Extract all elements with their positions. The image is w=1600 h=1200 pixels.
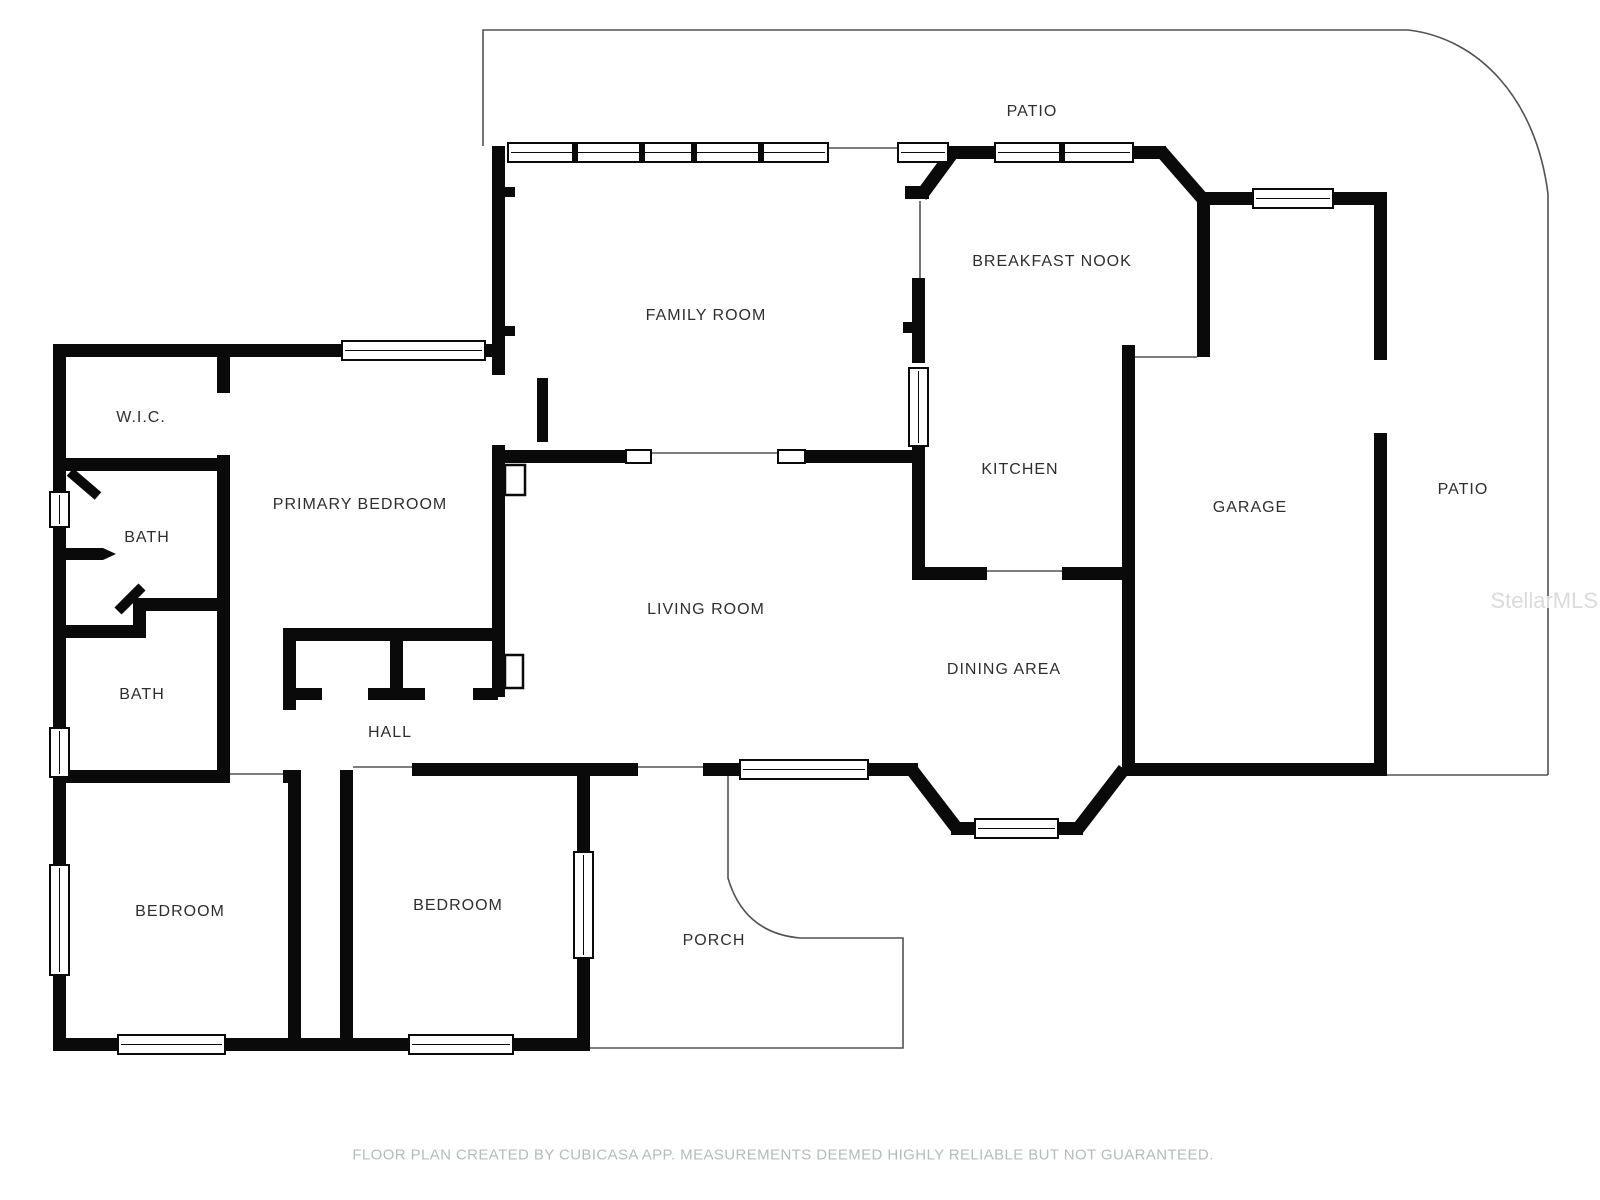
room-label-wic: W.I.C. <box>116 409 166 427</box>
room-label-living-room: LIVING ROOM <box>647 601 765 619</box>
fixture-boxes <box>505 465 525 688</box>
room-label-dining-area: DINING AREA <box>947 661 1061 679</box>
room-label-kitchen: KITCHEN <box>981 461 1058 479</box>
footer-disclaimer: FLOOR PLAN CREATED BY CUBICASA APP. MEAS… <box>352 1147 1213 1164</box>
room-label-bedroom-1: BEDROOM <box>135 903 225 921</box>
porch-outline <box>590 776 903 1048</box>
room-label-bath-2: BATH <box>119 686 164 704</box>
floor-plan-drawing <box>0 0 1600 1200</box>
floor-plan: PATIO FAMILY ROOM BREAKFAST NOOK W.I.C. … <box>0 0 1600 1200</box>
room-label-patio-right: PATIO <box>1438 481 1489 499</box>
room-label-primary-bedroom: PRIMARY BEDROOM <box>273 496 447 514</box>
windows-layer <box>50 143 1333 1054</box>
stellar-mls-watermark: StellarMLS <box>1490 588 1598 614</box>
room-label-breakfast-nook: BREAKFAST NOOK <box>972 253 1132 271</box>
room-label-patio-top: PATIO <box>1007 103 1058 121</box>
room-label-bath-1: BATH <box>124 529 169 547</box>
room-label-family-room: FAMILY ROOM <box>646 307 767 325</box>
room-label-hall: HALL <box>368 724 412 742</box>
room-label-bedroom-2: BEDROOM <box>413 897 503 915</box>
room-label-garage: GARAGE <box>1213 499 1287 517</box>
walls-layer <box>53 146 1387 1051</box>
room-label-porch: PORCH <box>683 932 746 950</box>
